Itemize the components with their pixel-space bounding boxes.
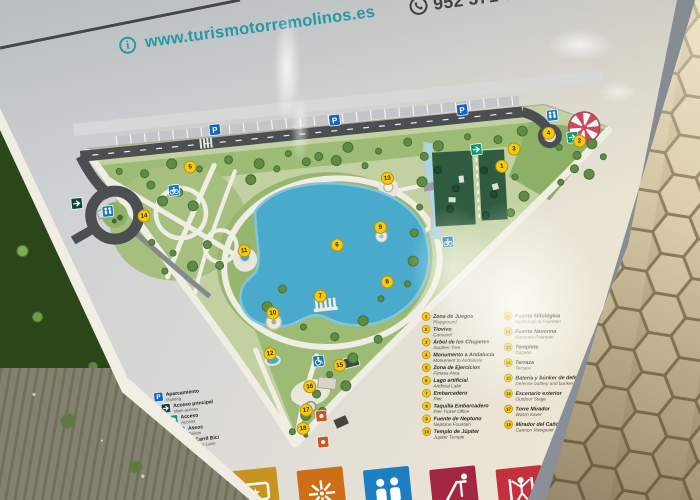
- tree: [289, 428, 296, 435]
- svg-text:Neptune Fountain: Neptune Fountain: [434, 422, 472, 427]
- family-icon: [363, 466, 414, 500]
- tree: [403, 138, 412, 147]
- tree: [464, 133, 471, 140]
- svg-text:11: 11: [506, 314, 511, 319]
- tree: [162, 268, 169, 275]
- parking-sign: P: [456, 104, 468, 116]
- svg-text:Pier: Pier: [433, 396, 442, 401]
- tree: [512, 174, 519, 181]
- tree: [302, 157, 311, 166]
- tree: [300, 324, 307, 331]
- legend-item-11: 11Fuente MitológicaMythological Fountain: [504, 312, 561, 324]
- tree: [506, 208, 515, 217]
- legend-item-3: 3Árbol de los ChupetesSoother Tree: [422, 338, 489, 351]
- svg-text:16: 16: [306, 383, 314, 391]
- svg-text:Jupiter Temple: Jupiter Temple: [433, 435, 465, 440]
- tree: [358, 315, 369, 326]
- access-sign: [470, 143, 482, 155]
- playground-area: [428, 145, 511, 229]
- svg-text:16: 16: [506, 391, 511, 396]
- tree: [446, 205, 454, 213]
- tree: [519, 191, 530, 202]
- tree: [149, 239, 156, 246]
- tree: [278, 285, 287, 294]
- legend-item-5: 5Zona de EjerciciosFitness Area: [422, 363, 480, 376]
- tree: [517, 126, 528, 137]
- tree: [433, 140, 444, 151]
- photo-of-park-map-sign: { "header": { "website": "www.turismotor…: [0, 0, 700, 500]
- parking-sign: P: [154, 392, 164, 402]
- svg-text:17: 17: [302, 406, 310, 414]
- tree: [374, 335, 383, 344]
- tree: [196, 166, 203, 173]
- tree: [570, 164, 579, 173]
- svg-text:Cannon Viewpoint: Cannon Viewpoint: [516, 427, 555, 432]
- svg-text:Outdoor Stage: Outdoor Stage: [515, 396, 546, 401]
- tree: [285, 150, 292, 157]
- tree: [600, 153, 607, 160]
- tree: [170, 250, 177, 257]
- legend-item-12: 12Fuente NavonnaNavonna Fountain: [504, 327, 556, 339]
- svg-text:12: 12: [266, 350, 274, 358]
- bottom-icon-row: ★: [230, 439, 546, 500]
- svg-text:10: 10: [269, 309, 277, 317]
- tree: [452, 184, 460, 192]
- legend-item-18: 18Mirador del CañónCannon Viewpoint: [505, 420, 563, 433]
- svg-text:15: 15: [336, 362, 344, 370]
- tree: [586, 138, 597, 149]
- svg-text:17: 17: [506, 407, 511, 412]
- tree: [326, 371, 333, 378]
- svg-text:Soother Tree: Soother Tree: [433, 345, 460, 350]
- svg-text:12: 12: [506, 329, 511, 334]
- tree: [215, 261, 224, 270]
- legend-item-16: 16Escenario exteriorOutdoor Stage: [504, 389, 562, 402]
- tree: [166, 158, 177, 169]
- svg-text:Watch tower: Watch tower: [516, 412, 542, 417]
- access-main-sign: [71, 197, 83, 209]
- svg-text:Access: Access: [181, 419, 196, 426]
- tree: [362, 162, 369, 169]
- tree: [274, 166, 281, 173]
- tree: [482, 211, 490, 219]
- tree: [378, 295, 385, 302]
- bunker: [333, 415, 349, 429]
- svg-text:13: 13: [384, 174, 392, 182]
- svg-text:Artificial Lake: Artificial Lake: [432, 383, 461, 388]
- tree: [480, 166, 488, 174]
- tree: [188, 200, 199, 211]
- fireworks-icon: [297, 466, 348, 500]
- tree: [224, 155, 233, 164]
- parking-sign: P: [328, 114, 340, 126]
- tree: [254, 158, 265, 169]
- tree: [410, 228, 419, 237]
- outdoor-stage: [318, 377, 337, 390]
- tree: [573, 151, 582, 160]
- svg-text:Mythological Fountain: Mythological Fountain: [515, 319, 561, 324]
- legend-item-7: 7EmbarcaderoPier: [422, 389, 468, 401]
- svg-text:Defense battery and bunker: Defense battery and bunker: [515, 381, 573, 386]
- tree: [342, 142, 353, 153]
- svg-text:18: 18: [506, 422, 511, 427]
- tree: [203, 240, 212, 249]
- food-sign: [317, 436, 329, 448]
- toilets-sign: [546, 109, 558, 121]
- tree: [330, 332, 339, 341]
- playground-icon: [429, 465, 480, 500]
- svg-text:Playground: Playground: [433, 319, 457, 324]
- legend-item-17: 17Torre MiradorWatch tower: [505, 405, 551, 417]
- svg-text:Parking: Parking: [166, 396, 182, 403]
- tree: [557, 179, 564, 186]
- parking-sign: P: [209, 124, 221, 136]
- svg-text:Gazebo: Gazebo: [515, 350, 532, 355]
- food-sign: [315, 410, 327, 422]
- tree: [245, 174, 256, 185]
- tree: [416, 204, 423, 211]
- tree: [420, 152, 429, 161]
- tree: [331, 155, 342, 166]
- svg-text:Monument to Andalusia: Monument to Andalusia: [433, 358, 482, 363]
- tree: [490, 191, 498, 199]
- svg-text:11: 11: [241, 247, 249, 255]
- legend-item-6: 6Lago artificialArtificial Lake: [422, 376, 468, 388]
- wheelchair-sign: [313, 355, 325, 367]
- tree: [375, 148, 382, 155]
- legend-item-13: 13TempleteGazebo: [504, 343, 538, 355]
- tree: [584, 169, 595, 180]
- tree: [116, 168, 123, 175]
- legend-item-14: 14TerrazaTerrace: [504, 358, 534, 370]
- legend-item-9: 9Fuente de NeptunoNeptune Fountain: [423, 415, 483, 428]
- tree: [314, 152, 323, 161]
- tree: [416, 176, 427, 187]
- legend-item-8: 8Taquilla EmbarcaderoPier Ticket Office: [422, 402, 489, 415]
- tree: [340, 380, 351, 391]
- tree: [187, 261, 198, 272]
- tree: [140, 169, 149, 178]
- tree: [146, 181, 155, 190]
- toilets-sign: [102, 205, 114, 217]
- svg-text:Carousel: Carousel: [433, 332, 453, 337]
- svg-text:15: 15: [506, 376, 511, 381]
- tree: [434, 166, 442, 174]
- svg-text:Navonna Fountain: Navonna Fountain: [515, 334, 554, 339]
- svg-text:18: 18: [299, 425, 307, 433]
- bike-lane-sign: [168, 184, 180, 196]
- legend-item-4: 4Monumento a AndalucíaMonument to Andalu…: [422, 350, 494, 363]
- svg-text:13: 13: [506, 345, 511, 350]
- tree: [408, 256, 419, 267]
- legend-item-10: 10Templo de JúpiterJupiter Temple: [423, 427, 480, 440]
- tree: [348, 352, 359, 363]
- tree: [157, 196, 168, 207]
- legend-item-1: 1Zona de JuegosPlayground: [422, 312, 473, 324]
- tree: [404, 281, 411, 288]
- tree: [494, 135, 503, 144]
- svg-text:10: 10: [424, 429, 429, 434]
- legend-item-2: 2TiovivoCarousel: [422, 325, 453, 337]
- svg-text:14: 14: [140, 212, 148, 220]
- svg-text:Pier Ticket Office: Pier Ticket Office: [434, 409, 470, 414]
- svg-text:Fitness Area: Fitness Area: [433, 371, 460, 376]
- svg-text:Terrace: Terrace: [515, 366, 531, 371]
- tree: [556, 144, 563, 151]
- bike-lane-sign: [442, 236, 454, 248]
- svg-text:14: 14: [506, 360, 511, 365]
